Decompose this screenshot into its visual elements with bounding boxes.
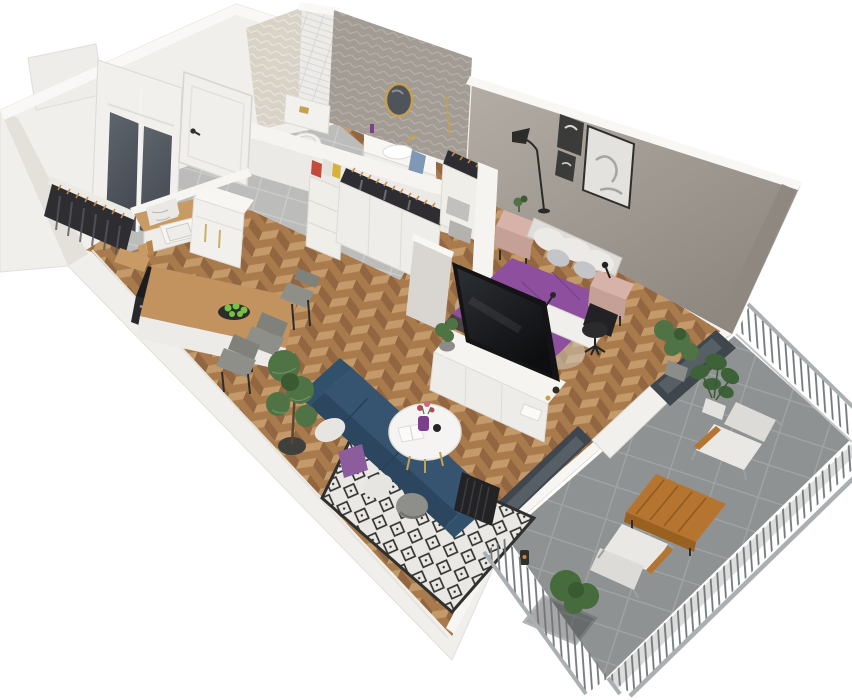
fridge-handle-1	[205, 224, 206, 242]
pine-foliage-dark	[281, 373, 299, 391]
soap-bottle	[370, 124, 374, 133]
office-chair-seat	[582, 322, 608, 338]
desk-lamp-head	[550, 292, 556, 298]
round-mirror	[386, 84, 412, 116]
floor-lamp-base	[538, 209, 550, 214]
fridge-handle-2	[219, 230, 220, 248]
flower-vase	[418, 416, 429, 431]
decor-bowl	[553, 387, 560, 394]
sideboard-plant-pot	[439, 341, 455, 352]
table-bowl	[433, 424, 441, 432]
decor-gold-object	[546, 396, 551, 401]
bedroom-plant-shadowleaf	[674, 328, 686, 340]
sink-basin	[383, 145, 413, 159]
shrub-foliage-dark	[568, 582, 584, 598]
lantern-glow	[523, 555, 527, 559]
floorplan-3d-render	[0, 0, 852, 700]
floorplan-stage	[0, 0, 852, 700]
